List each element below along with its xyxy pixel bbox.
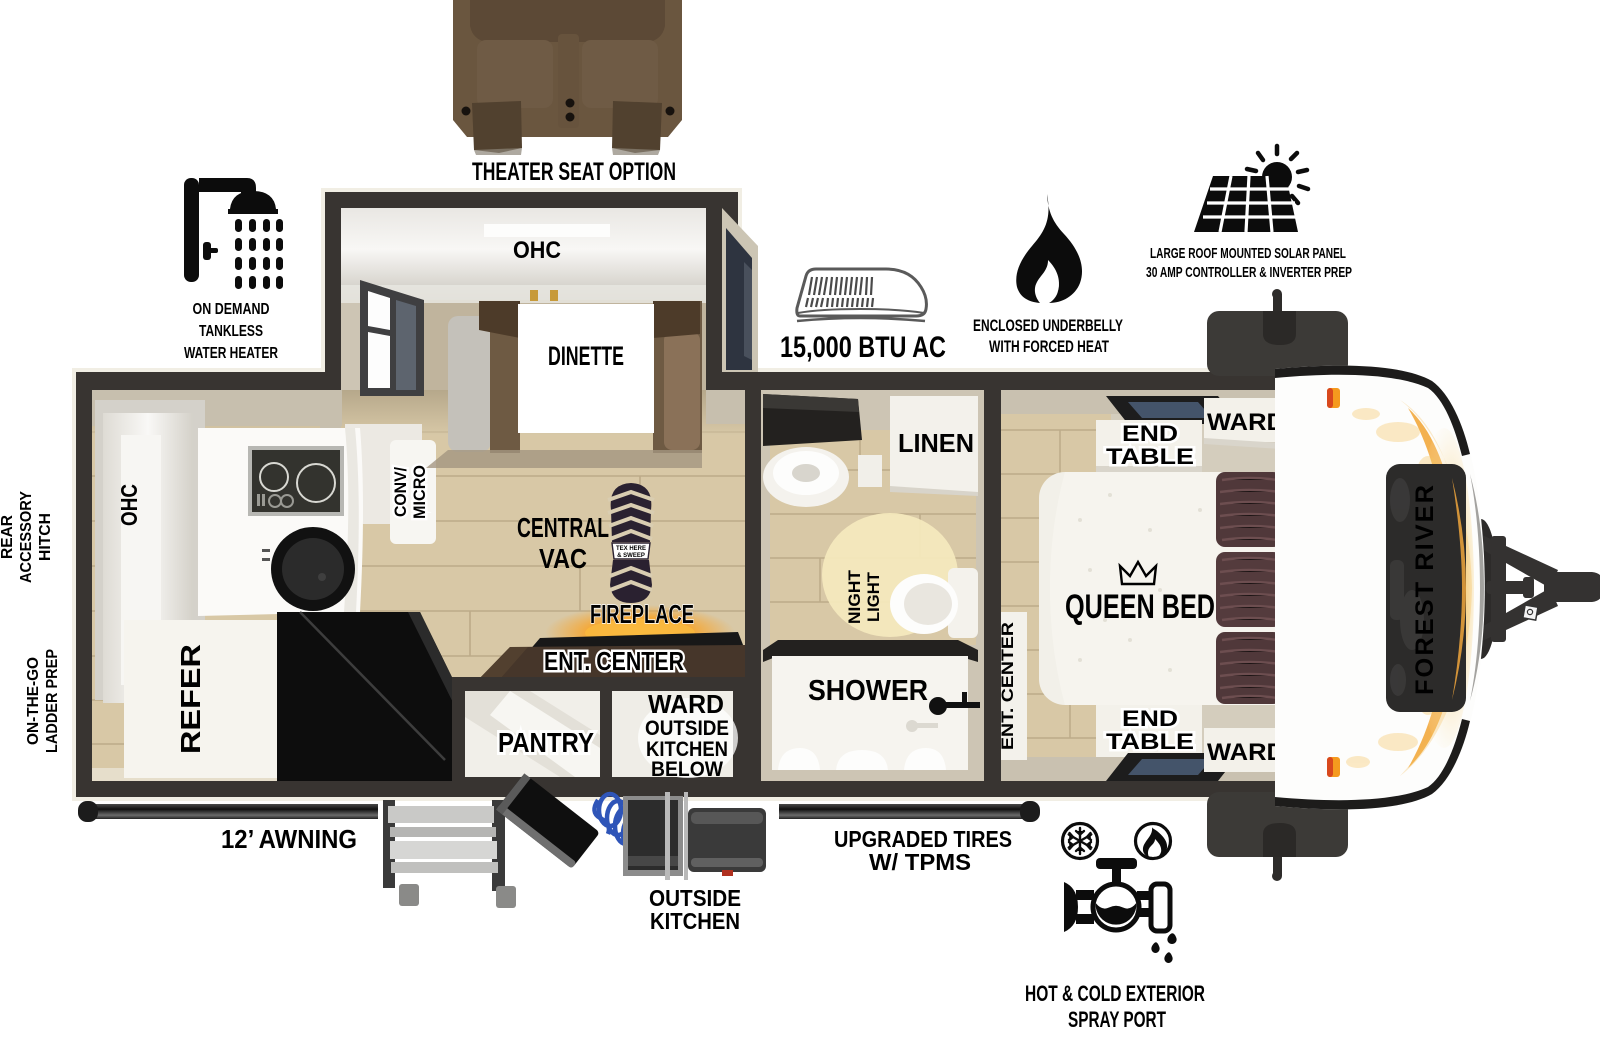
svg-text:15,000 BTU AC: 15,000 BTU AC	[780, 331, 946, 364]
svg-text:W/ TPMS: W/ TPMS	[869, 849, 971, 875]
svg-text:ENCLOSED UNDERBELLY: ENCLOSED UNDERBELLY	[973, 316, 1123, 335]
svg-text:SHOWER: SHOWER	[808, 675, 928, 707]
svg-text:& SWEEP: & SWEEP	[617, 553, 645, 559]
svg-text:BELOW: BELOW	[651, 758, 723, 781]
svg-text:CONV/: CONV/	[391, 467, 410, 517]
svg-text:SPRAY PORT: SPRAY PORT	[1068, 1007, 1166, 1032]
svg-text:NIGHT: NIGHT	[845, 569, 864, 624]
svg-text:LADDER PREP: LADDER PREP	[44, 649, 61, 753]
svg-text:WARD: WARD	[1207, 409, 1285, 436]
svg-text:OUTSIDE: OUTSIDE	[645, 717, 729, 740]
svg-text:ENT. CENTER: ENT. CENTER	[998, 622, 1017, 750]
svg-text:TANKLESS: TANKLESS	[199, 323, 263, 340]
svg-text:LARGE ROOF MOUNTED SOLAR PANEL: LARGE ROOF MOUNTED SOLAR PANEL	[1150, 245, 1346, 262]
svg-text:THEATER SEAT OPTION: THEATER SEAT OPTION	[472, 158, 676, 186]
svg-text:KITCHEN: KITCHEN	[650, 908, 740, 934]
svg-text:12’ AWNING: 12’ AWNING	[221, 824, 357, 854]
svg-text:OHC: OHC	[116, 484, 142, 526]
svg-text:REAR: REAR	[0, 515, 16, 559]
svg-text:FOREST RIVER: FOREST RIVER	[1411, 483, 1439, 695]
svg-text:ON-THE-GO: ON-THE-GO	[25, 657, 42, 745]
svg-text:LINEN: LINEN	[898, 428, 974, 458]
svg-text:TABLE: TABLE	[1106, 729, 1194, 754]
svg-text:END: END	[1122, 706, 1178, 731]
svg-text:CENTRAL: CENTRAL	[517, 512, 609, 543]
svg-text:DINETTE: DINETTE	[548, 341, 624, 371]
svg-text:TEX HERE: TEX HERE	[616, 546, 646, 552]
svg-text:ACCESSORY: ACCESSORY	[18, 491, 35, 583]
svg-text:WARD: WARD	[1207, 739, 1285, 766]
svg-text:MICRO: MICRO	[410, 465, 429, 519]
svg-text:HITCH: HITCH	[37, 513, 54, 561]
svg-text:30 AMP CONTROLLER & INVERTER P: 30 AMP CONTROLLER & INVERTER PREP	[1146, 264, 1352, 281]
svg-text:PANTRY: PANTRY	[498, 727, 594, 758]
svg-text:FIREPLACE: FIREPLACE	[590, 599, 694, 629]
svg-text:LIGHT: LIGHT	[864, 571, 883, 622]
svg-text:OHC: OHC	[513, 237, 561, 264]
svg-text:VAC: VAC	[539, 543, 587, 574]
svg-text:REFER: REFER	[175, 644, 206, 754]
svg-text:TABLE: TABLE	[1106, 444, 1194, 469]
svg-text:QUEEN BED: QUEEN BED	[1065, 588, 1215, 626]
svg-text:WARD: WARD	[648, 689, 724, 719]
svg-text:ON DEMAND: ON DEMAND	[193, 301, 270, 318]
svg-text:WATER HEATER: WATER HEATER	[184, 345, 278, 362]
svg-text:ENT. CENTER: ENT. CENTER	[544, 646, 684, 676]
svg-text:HOT & COLD EXTERIOR: HOT & COLD EXTERIOR	[1025, 981, 1205, 1006]
svg-text:WITH FORCED HEAT: WITH FORCED HEAT	[989, 337, 1109, 356]
svg-text:END: END	[1122, 421, 1178, 446]
